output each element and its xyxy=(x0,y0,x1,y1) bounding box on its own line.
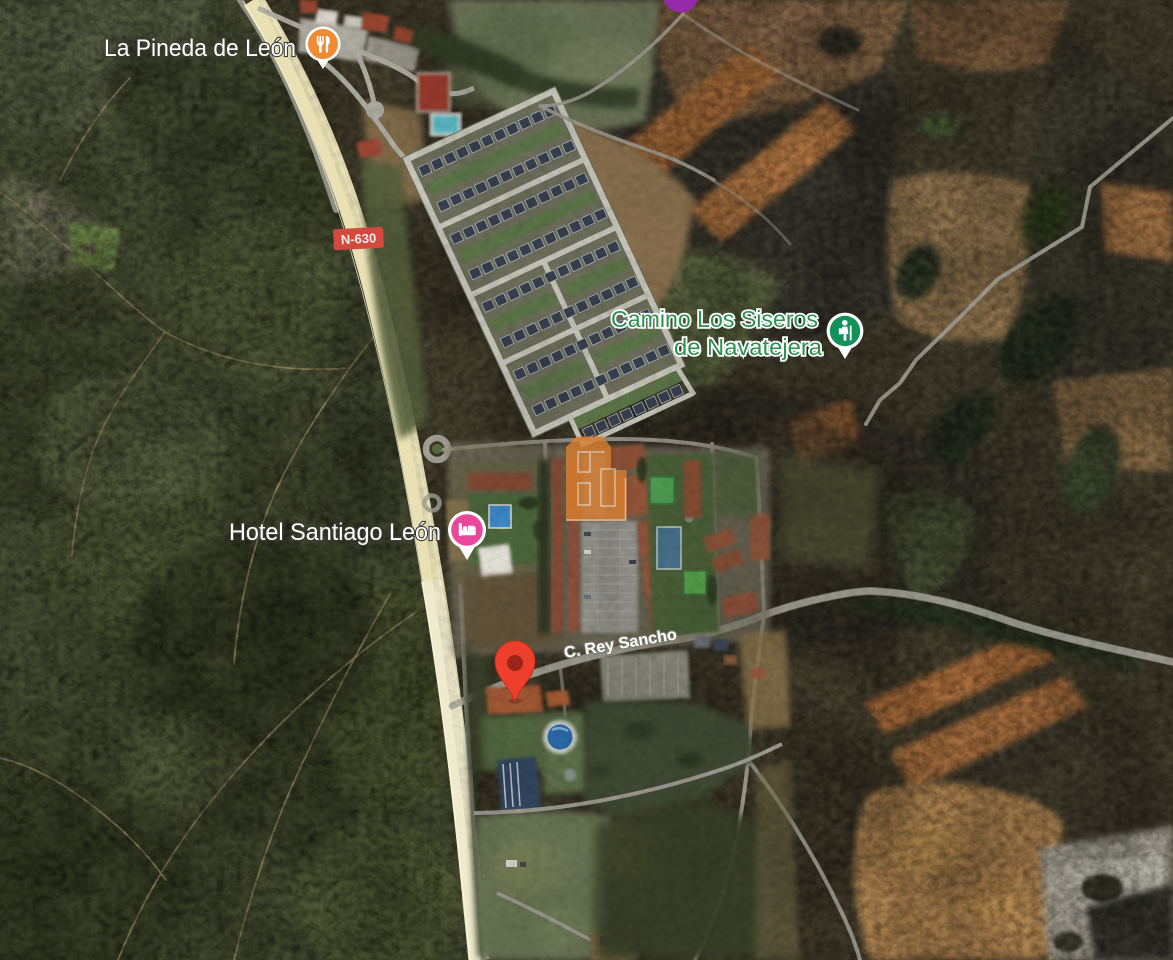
svg-text:N-630: N-630 xyxy=(340,230,376,247)
svg-text:Camino Los Siseros: Camino Los Siseros xyxy=(611,306,818,332)
svg-text:de Navatejera: de Navatejera xyxy=(674,334,823,360)
svg-text:La Pineda de León: La Pineda de León xyxy=(104,35,296,62)
svg-text:Hotel Santiago León: Hotel Santiago León xyxy=(229,519,441,546)
